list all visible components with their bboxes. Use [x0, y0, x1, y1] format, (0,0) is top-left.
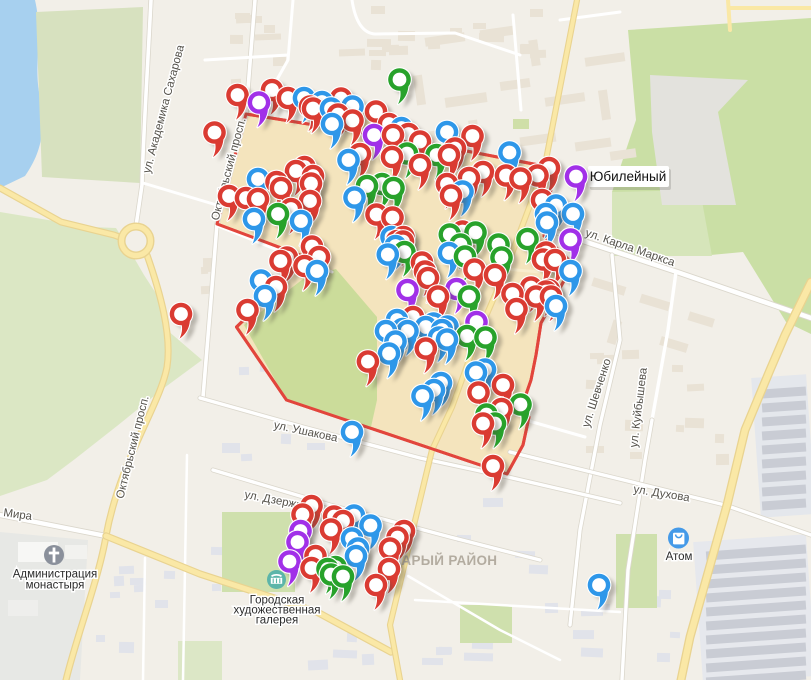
- svg-text:монастыря: монастыря: [26, 580, 85, 592]
- svg-text:Юбилейный: Юбилейный: [590, 169, 667, 184]
- svg-text:галерея: галерея: [256, 615, 298, 627]
- svg-text:Атом: Атом: [666, 551, 693, 563]
